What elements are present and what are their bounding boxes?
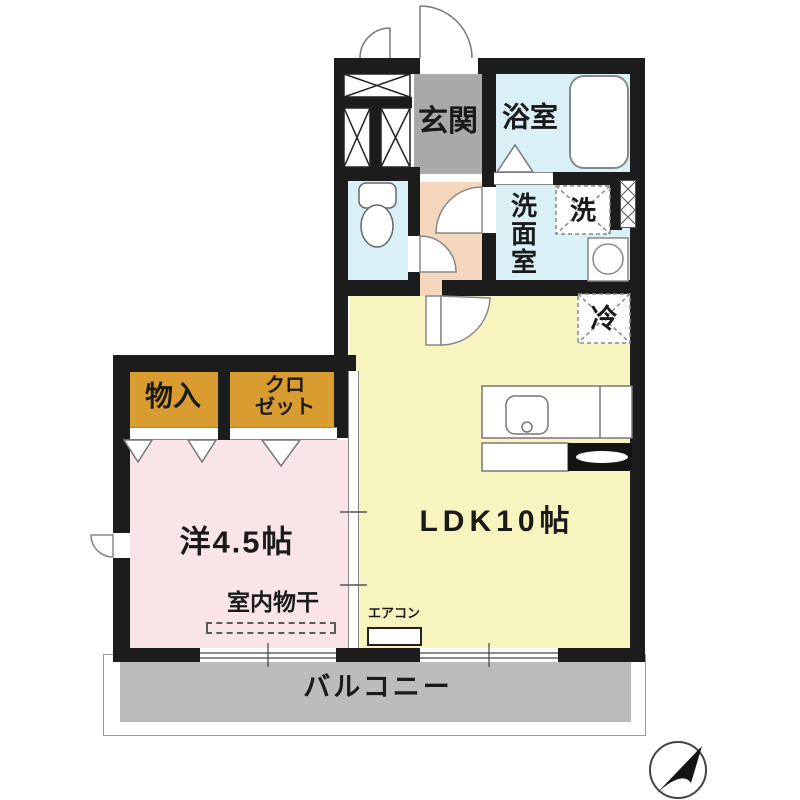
shoe-cabinet-symbol bbox=[344, 74, 410, 97]
aircon-unit-symbol bbox=[367, 627, 422, 646]
wall bbox=[408, 181, 420, 236]
hallway-area bbox=[420, 182, 482, 296]
genkan-step bbox=[416, 174, 482, 182]
washer-label: 洗 bbox=[570, 196, 596, 225]
ldk-window bbox=[420, 648, 558, 662]
closet-label-line2: ゼット bbox=[255, 397, 315, 419]
wall bbox=[370, 108, 381, 167]
bedroom-exterior-door-opening bbox=[113, 533, 130, 558]
wall bbox=[442, 280, 645, 296]
closet-sliding-door bbox=[230, 427, 337, 440]
closet-label-line1: クロ bbox=[265, 375, 305, 397]
wall bbox=[113, 355, 356, 372]
north-arrow-icon bbox=[650, 742, 706, 798]
indoor-drying-rack-symbol bbox=[206, 622, 336, 634]
floor-plan: 玄関 浴室 洗面室 洗 冷 物入 クロ ゼット 洋4.5帖 LDK10帖 室内物… bbox=[0, 0, 800, 800]
storage-sliding-door bbox=[130, 427, 218, 440]
bedroom-window bbox=[200, 648, 336, 662]
wall bbox=[334, 97, 412, 108]
indoor-drying-label: 室内物干 bbox=[227, 590, 319, 616]
wall bbox=[482, 58, 496, 187]
closet-label: クロ ゼット bbox=[255, 375, 315, 420]
wall bbox=[630, 58, 645, 662]
bathroom-door-opening bbox=[494, 172, 553, 185]
wall bbox=[334, 167, 420, 181]
wall bbox=[218, 371, 230, 440]
wall bbox=[482, 233, 496, 296]
toilet-area bbox=[348, 181, 408, 282]
wall bbox=[113, 648, 200, 662]
entrance-door-arc bbox=[360, 6, 472, 58]
bedroom-ldk-partition bbox=[348, 371, 359, 648]
wall bbox=[408, 272, 420, 296]
ldk-area bbox=[350, 296, 630, 648]
wall bbox=[558, 648, 645, 662]
aircon-label: エアコン bbox=[368, 607, 420, 622]
washroom-label: 洗面室 bbox=[507, 192, 536, 276]
toilet-door-opening bbox=[408, 236, 420, 272]
bathroom-label: 浴室 bbox=[502, 101, 558, 132]
wall bbox=[336, 648, 420, 662]
fridge-label: 冷 bbox=[591, 304, 618, 334]
wall bbox=[113, 558, 130, 658]
storage-label: 物入 bbox=[145, 380, 201, 411]
western-room-label: 洋4.5帖 bbox=[179, 526, 294, 561]
ldk-label: LDK10帖 bbox=[419, 505, 574, 539]
bedroom-door-arc bbox=[91, 535, 113, 557]
washroom-door-opening bbox=[482, 187, 496, 233]
washroom-louver-window bbox=[620, 180, 636, 228]
balcony-label: バルコニー bbox=[303, 672, 452, 702]
wall bbox=[113, 355, 130, 533]
genkan-label: 玄関 bbox=[418, 105, 478, 139]
wall bbox=[478, 58, 645, 74]
